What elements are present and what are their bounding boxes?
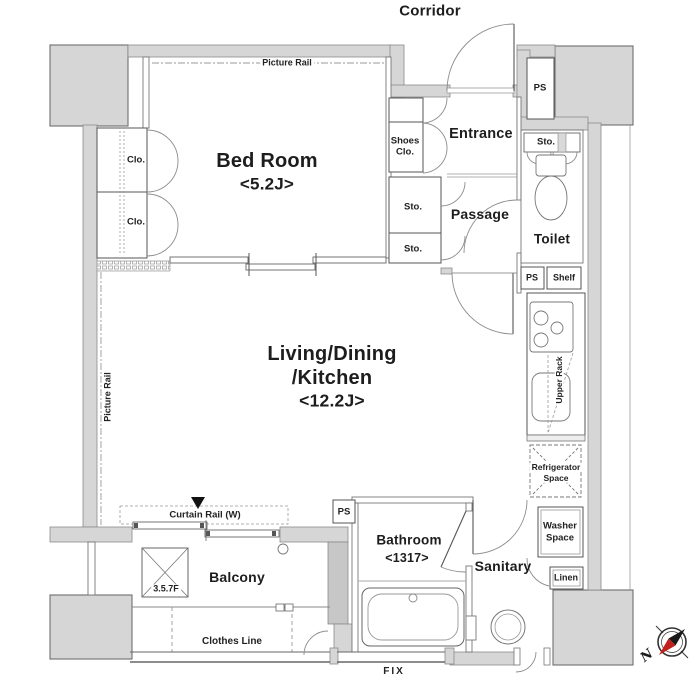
pillar-bottom-right <box>553 590 633 665</box>
closet-upper-label: Clo. <box>127 155 145 165</box>
washing-machine <box>491 610 525 644</box>
ps-kitchen-label: PS <box>526 274 538 283</box>
entrance-door-arc <box>447 24 514 91</box>
washer-space-label-line1: Washer <box>543 521 577 531</box>
refrigerator-space-label-line2: Space <box>541 474 570 483</box>
ldk-size-label: <12.2J> <box>299 392 365 410</box>
shoes-closet-label-line1: Shoes <box>391 136 420 146</box>
closet-door-arc <box>147 130 178 192</box>
floor-plan: Corridor Picture Rail Bed Room <5.2J> Cl… <box>0 0 696 684</box>
balcony-drain <box>278 544 288 554</box>
shelf-label: Shelf <box>553 274 575 283</box>
bedroom-size-label: <5.2J> <box>240 176 294 193</box>
clothes-line-bracket <box>285 604 293 611</box>
ps-balcony-label: PS <box>338 507 351 517</box>
clothes-line-bracket <box>276 604 284 611</box>
washer-space-label-line2: Space <box>546 533 574 543</box>
picture-rail-top-label: Picture Rail <box>260 59 314 68</box>
kitchen <box>521 267 585 441</box>
ps-corridor-label: PS <box>534 83 547 93</box>
corridor-label: Corridor <box>399 4 461 19</box>
compass-icon <box>656 626 688 658</box>
balcony-hatch-label: 3.5.7F <box>151 585 181 594</box>
upper-rack-label: Upper Rack <box>555 354 564 405</box>
closet-lower-label: Clo. <box>127 217 145 227</box>
refrigerator-space-label-line1: Refrigerator <box>530 463 583 472</box>
pillar-top-left <box>50 45 128 126</box>
pillar-top-right <box>555 46 633 125</box>
curtain-rail-label: Curtain Rail (W) <box>167 510 242 520</box>
balcony-label: Balcony <box>209 570 265 584</box>
closet-door-arc <box>147 194 178 256</box>
storage-passage-lower-label: Sto. <box>404 244 422 254</box>
ldk-label-line2: /Kitchen <box>292 368 373 388</box>
toilet-tank <box>536 155 566 176</box>
sanitary-door-arc <box>473 500 527 554</box>
toilet-bowl <box>535 176 567 220</box>
bathroom-door-leaf <box>441 511 466 567</box>
ldk-label-line1: Living/Dining <box>267 344 396 364</box>
bathroom-door-arc <box>441 567 466 572</box>
bathroom-label: Bathroom <box>376 533 441 547</box>
passage-label: Passage <box>451 207 509 221</box>
sanitary-label: Sanitary <box>475 559 532 573</box>
storage-toilet-label: Sto. <box>537 137 555 147</box>
bedroom-closet <box>97 128 178 258</box>
shoes-closet-label-line2: Clo. <box>396 147 414 157</box>
linen-label: Linen <box>554 574 578 583</box>
storage-passage-upper-label: Sto. <box>404 202 422 212</box>
bedroom-label: Bed Room <box>216 151 318 171</box>
floorplan-drawing <box>0 0 696 684</box>
clothes-line-label: Clothes Line <box>202 637 262 647</box>
entrance-door <box>447 24 517 177</box>
fix-window-label: FIX <box>383 667 405 677</box>
picture-rail-left-label: Picture Rail <box>104 370 113 424</box>
entrance-label: Entrance <box>449 127 513 142</box>
kitchen-sink <box>532 373 570 421</box>
pillar-bottom-left <box>50 595 132 659</box>
balcony-partition-arc <box>304 631 328 655</box>
toilet-label: Toilet <box>534 232 570 246</box>
bathtub <box>362 588 464 646</box>
curtain-rail-marker <box>191 497 205 509</box>
bathroom-size-label: <1317> <box>385 552 429 565</box>
passage-ldk-door <box>452 273 517 334</box>
